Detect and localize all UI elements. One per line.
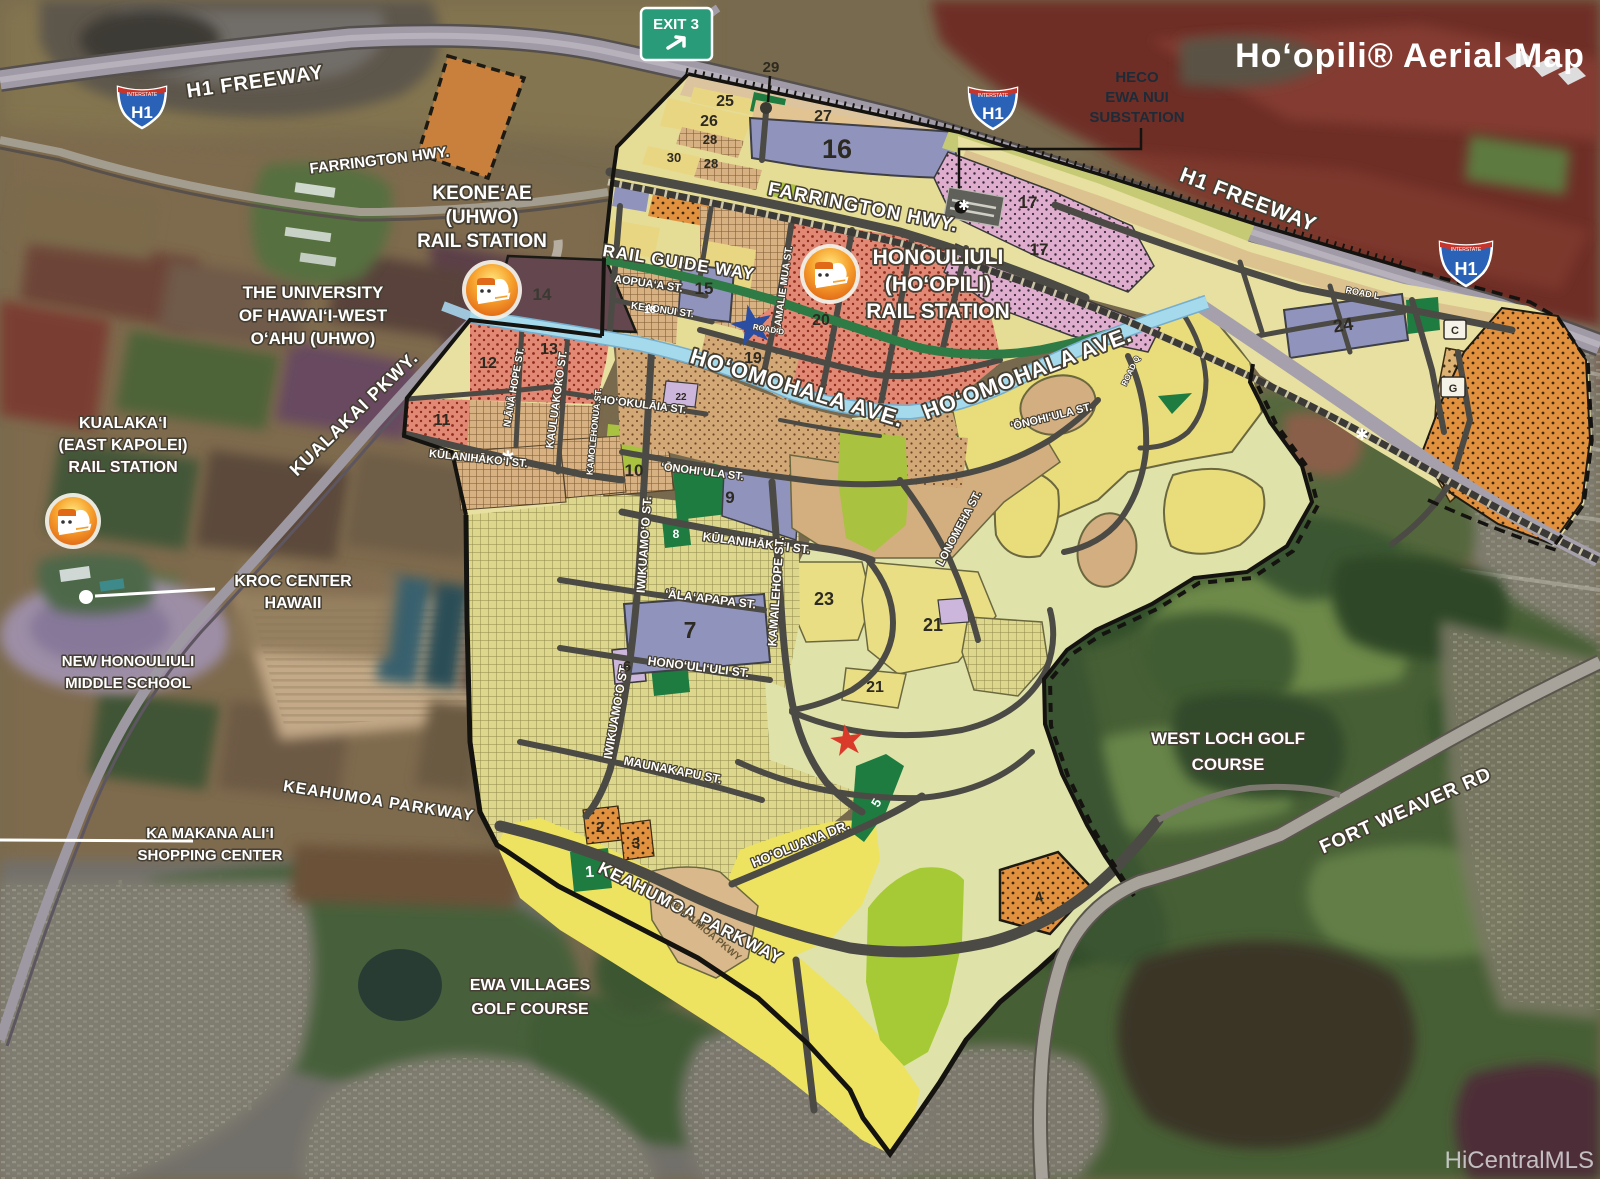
svg-text:HAWAII: HAWAII xyxy=(265,595,322,612)
svg-text:NEW HONOULIULI: NEW HONOULIULI xyxy=(62,653,195,670)
svg-text:INTERSTATE: INTERSTATE xyxy=(127,92,158,98)
svg-text:3: 3 xyxy=(632,835,640,852)
svg-text:KEONE‘AE: KEONE‘AE xyxy=(432,183,531,204)
svg-text:HECO: HECO xyxy=(1115,69,1159,86)
svg-text:KUALAKA‘I: KUALAKA‘I xyxy=(79,415,167,432)
svg-text:THE UNIVERSITY: THE UNIVERSITY xyxy=(243,283,384,302)
svg-text:COURSE: COURSE xyxy=(1192,755,1265,774)
svg-text:(HO‘OPILI): (HO‘OPILI) xyxy=(885,273,991,296)
svg-text:16: 16 xyxy=(822,134,852,164)
svg-text:H1: H1 xyxy=(131,103,153,122)
svg-text:21: 21 xyxy=(923,615,943,635)
svg-text:23: 23 xyxy=(814,589,834,609)
svg-text:10: 10 xyxy=(625,461,644,480)
svg-text:28: 28 xyxy=(703,132,717,147)
svg-text:17: 17 xyxy=(1030,240,1049,259)
svg-text:G: G xyxy=(1449,383,1458,395)
svg-text:22: 22 xyxy=(675,392,687,403)
svg-text:✱: ✱ xyxy=(958,197,970,213)
svg-text:12: 12 xyxy=(479,355,497,372)
svg-text:EXIT 3: EXIT 3 xyxy=(653,16,699,33)
svg-text:11: 11 xyxy=(434,412,451,429)
svg-text:OF HAWAI‘I-WEST: OF HAWAI‘I-WEST xyxy=(239,306,388,325)
svg-text:20: 20 xyxy=(812,312,830,329)
svg-text:WEST LOCH GOLF: WEST LOCH GOLF xyxy=(1151,729,1305,748)
svg-text:15: 15 xyxy=(695,279,714,298)
svg-text:MIDDLE SCHOOL: MIDDLE SCHOOL xyxy=(65,675,191,692)
svg-text:SUBSTATION: SUBSTATION xyxy=(1089,109,1184,126)
svg-text:INTERSTATE: INTERSTATE xyxy=(1451,247,1482,253)
svg-text:18: 18 xyxy=(644,304,656,316)
svg-text:(UHWO): (UHWO) xyxy=(446,207,519,228)
svg-text:SHOPPING CENTER: SHOPPING CENTER xyxy=(137,847,282,864)
svg-text:KA MAKANA ALI‘I: KA MAKANA ALI‘I xyxy=(146,825,274,842)
svg-text:26: 26 xyxy=(700,113,718,130)
svg-text:RAIL STATION: RAIL STATION xyxy=(417,231,547,252)
svg-text:H1: H1 xyxy=(1454,259,1477,279)
svg-text:C: C xyxy=(1451,325,1459,337)
svg-text:25: 25 xyxy=(716,93,734,110)
svg-text:GOLF COURSE: GOLF COURSE xyxy=(471,1001,589,1018)
svg-text:INTERSTATE: INTERSTATE xyxy=(978,93,1009,99)
svg-text:6: 6 xyxy=(623,658,631,675)
svg-text:7: 7 xyxy=(684,617,697,643)
svg-text:Ho‘opili® Aerial Map: Ho‘opili® Aerial Map xyxy=(1235,37,1585,75)
svg-text:8: 8 xyxy=(673,527,680,541)
svg-text:13: 13 xyxy=(540,341,558,358)
svg-text:29: 29 xyxy=(763,59,780,76)
svg-text:17: 17 xyxy=(1019,193,1038,212)
svg-text:2: 2 xyxy=(596,819,604,836)
svg-text:RAIL STATION: RAIL STATION xyxy=(68,459,177,476)
svg-text:24: 24 xyxy=(1332,314,1355,337)
svg-text:19: 19 xyxy=(744,350,762,367)
svg-text:14: 14 xyxy=(533,285,552,304)
svg-text:HONOULIULI: HONOULIULI xyxy=(873,246,1004,269)
svg-text:30: 30 xyxy=(667,150,681,165)
svg-text:EWA VILLAGES: EWA VILLAGES xyxy=(470,977,591,994)
svg-text:27: 27 xyxy=(814,108,832,125)
svg-text:EWA NUI: EWA NUI xyxy=(1105,89,1169,106)
svg-text:9: 9 xyxy=(725,488,734,507)
svg-text:O‘AHU (UHWO): O‘AHU (UHWO) xyxy=(251,329,376,348)
svg-text:28: 28 xyxy=(704,156,718,171)
svg-text:1: 1 xyxy=(585,864,595,882)
svg-text:HiCentralMLS: HiCentralMLS xyxy=(1445,1147,1594,1174)
svg-text:✱: ✱ xyxy=(1355,427,1368,444)
svg-text:RAIL STATION: RAIL STATION xyxy=(866,300,1010,323)
svg-text:21: 21 xyxy=(866,679,884,696)
svg-text:KROC CENTER: KROC CENTER xyxy=(234,573,352,590)
svg-text:H1: H1 xyxy=(982,104,1004,123)
svg-text:(EAST KAPOLEI): (EAST KAPOLEI) xyxy=(59,437,188,454)
